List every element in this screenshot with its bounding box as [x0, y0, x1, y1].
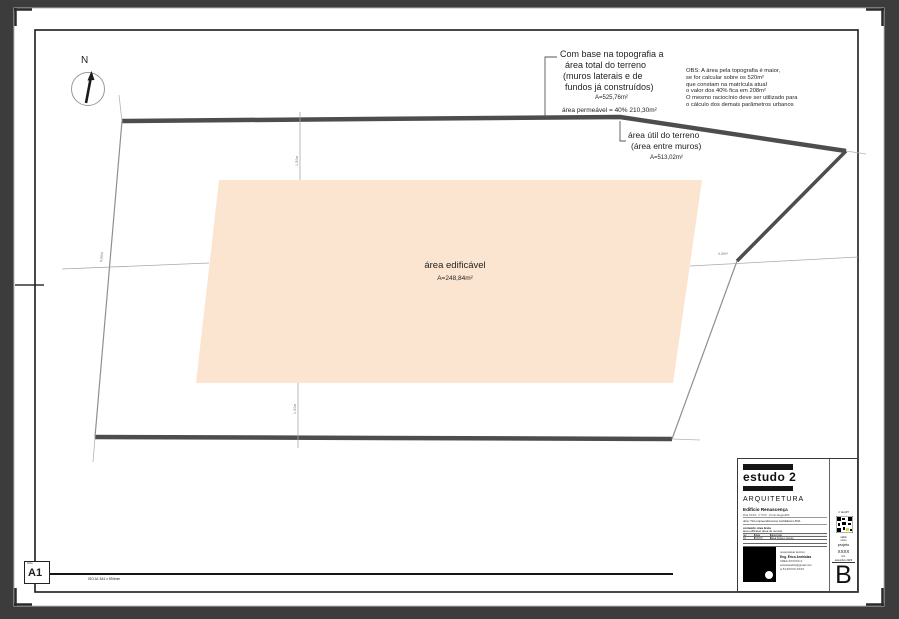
util-note-line2: (área entre muros)	[631, 142, 701, 152]
date-col-header: data	[755, 534, 771, 536]
drawing-viewport: N Com base na topografia a área total do…	[0, 0, 899, 619]
wall-bottom	[95, 437, 672, 439]
stamp-projeto-value: XXXX	[829, 549, 858, 554]
rev-col-header: rev	[743, 534, 755, 536]
stamp-note2: como	[829, 539, 858, 542]
obs-line3: que constam na matrícula atual	[686, 82, 767, 89]
format-label: A1	[28, 567, 42, 580]
topo-note-permeavel: área permeável = 40% 210,30m²	[562, 107, 657, 114]
project-address: Rua XXXX, nº XXX - Porto Alegre/RS	[743, 513, 789, 517]
obs-line1: OBS: A área pela topografia é maior,	[686, 68, 780, 75]
topo-note-line2: área total do terreno	[565, 60, 646, 70]
util-note-area: A=513,02m²	[650, 155, 683, 162]
format-box: folha A1	[24, 561, 50, 584]
contact-line5: w 51 9XXXX-XXXX	[780, 567, 804, 571]
dim-label-right: 3,00m	[718, 252, 729, 256]
project-name: Edifício Renascença	[743, 507, 788, 512]
logo-bar-bottom	[743, 486, 793, 491]
studio-logo-text: estudo 2	[743, 470, 796, 484]
stamp-projeto-label: projeto	[829, 543, 858, 547]
sheet-size-label: ISO A1 841 x 594mm	[88, 578, 120, 582]
format-caption: folha	[27, 563, 33, 566]
logo-dot	[765, 571, 773, 579]
desc-col-header: descrição	[771, 534, 827, 536]
obs-line2: se for calcular sobre os 520m²	[686, 75, 764, 82]
util-note-line1: área útil do terreno	[628, 131, 699, 141]
edificavel-area: A=248,84m²	[395, 275, 515, 282]
obs-line6: o cálculo dos demais parâmetros urbanos	[686, 102, 794, 109]
title-block: estudo 2 ARQUITETURA Edifício Renascença…	[737, 458, 858, 592]
studio-logo-mark	[743, 547, 776, 582]
owner-line: obra: TGI empreendimentos imobiliários L…	[743, 519, 800, 523]
edificavel-title: área edificável	[395, 261, 515, 272]
qr-stamp	[836, 516, 853, 533]
revision-table: rev data descrição 01 XX/XX área bruta e…	[743, 533, 827, 547]
discipline-label: ARQUITETURA	[743, 496, 804, 503]
topo-note-line1: Com base na topografia a	[560, 49, 664, 59]
logo-bar-top	[743, 464, 793, 470]
obs-line5: O mesmo raciocínio deve ser utilizado pa…	[686, 95, 797, 102]
topo-note-line4: fundos já construídos)	[565, 82, 654, 92]
revision-letter: B	[829, 562, 858, 589]
obs-line4: o valor dos 40% fica em 208m²	[686, 88, 766, 95]
dim-label-bottom: 1,50m	[294, 404, 298, 414]
stamp-top-note: nº da ART	[829, 511, 858, 514]
north-label: N	[81, 55, 88, 67]
topo-note-area: A=525,76m²	[595, 95, 628, 102]
dim-label-top: 1,50m	[296, 156, 300, 166]
separator-line	[743, 517, 827, 518]
topo-note-line3: (muros laterais e de	[563, 71, 643, 81]
footer-strip: ISO A1 841 x 594mm	[50, 573, 673, 594]
